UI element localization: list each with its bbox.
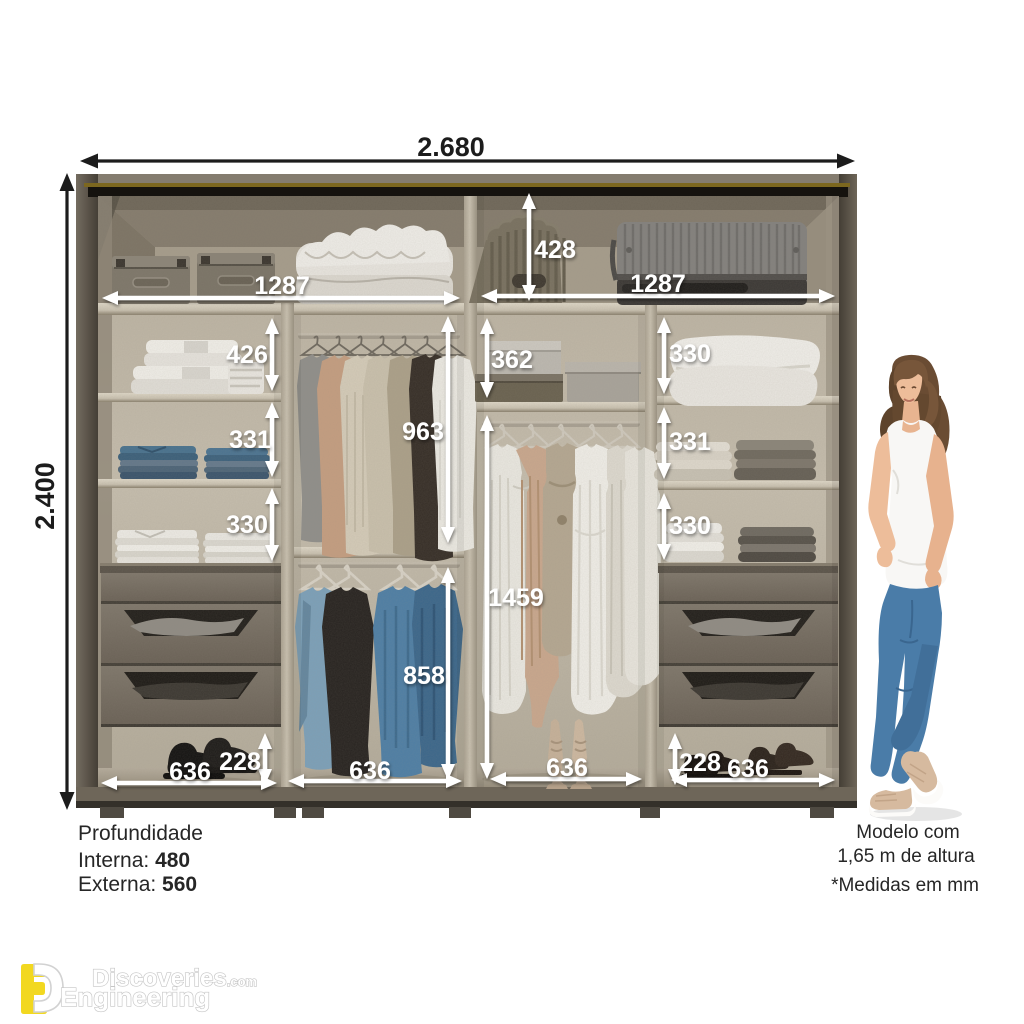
svg-text:331: 331 bbox=[669, 428, 711, 456]
svg-text:428: 428 bbox=[534, 236, 576, 264]
svg-text:2.400: 2.400 bbox=[30, 462, 60, 530]
svg-text:331: 331 bbox=[229, 426, 271, 454]
svg-text:330: 330 bbox=[669, 340, 711, 368]
svg-text:858: 858 bbox=[403, 662, 445, 690]
svg-text:*Medidas em mm: *Medidas em mm bbox=[831, 875, 979, 896]
svg-text:228: 228 bbox=[679, 749, 721, 777]
svg-text:Profundidade: Profundidade bbox=[78, 822, 203, 845]
svg-text:2.680: 2.680 bbox=[417, 132, 485, 162]
svg-text:362: 362 bbox=[491, 346, 533, 374]
svg-text:Engineering: Engineering bbox=[60, 982, 210, 1012]
svg-text:1287: 1287 bbox=[630, 270, 686, 298]
svg-text:1,65 m de altura: 1,65 m de altura bbox=[837, 846, 975, 867]
svg-text:Interna: 480: Interna: 480 bbox=[78, 849, 190, 872]
svg-text:Externa: 560: Externa: 560 bbox=[78, 873, 197, 896]
svg-text:426: 426 bbox=[226, 341, 268, 369]
svg-text:1459: 1459 bbox=[488, 584, 544, 612]
svg-text:330: 330 bbox=[669, 512, 711, 540]
svg-text:636: 636 bbox=[727, 755, 769, 783]
svg-text:636: 636 bbox=[169, 758, 211, 786]
svg-text:Modelo com: Modelo com bbox=[856, 822, 960, 843]
svg-text:1287: 1287 bbox=[254, 272, 310, 300]
svg-text:963: 963 bbox=[402, 418, 444, 446]
svg-text:636: 636 bbox=[546, 754, 588, 782]
svg-text:636: 636 bbox=[349, 757, 391, 785]
svg-text:228: 228 bbox=[219, 748, 261, 776]
svg-text:330: 330 bbox=[226, 511, 268, 539]
